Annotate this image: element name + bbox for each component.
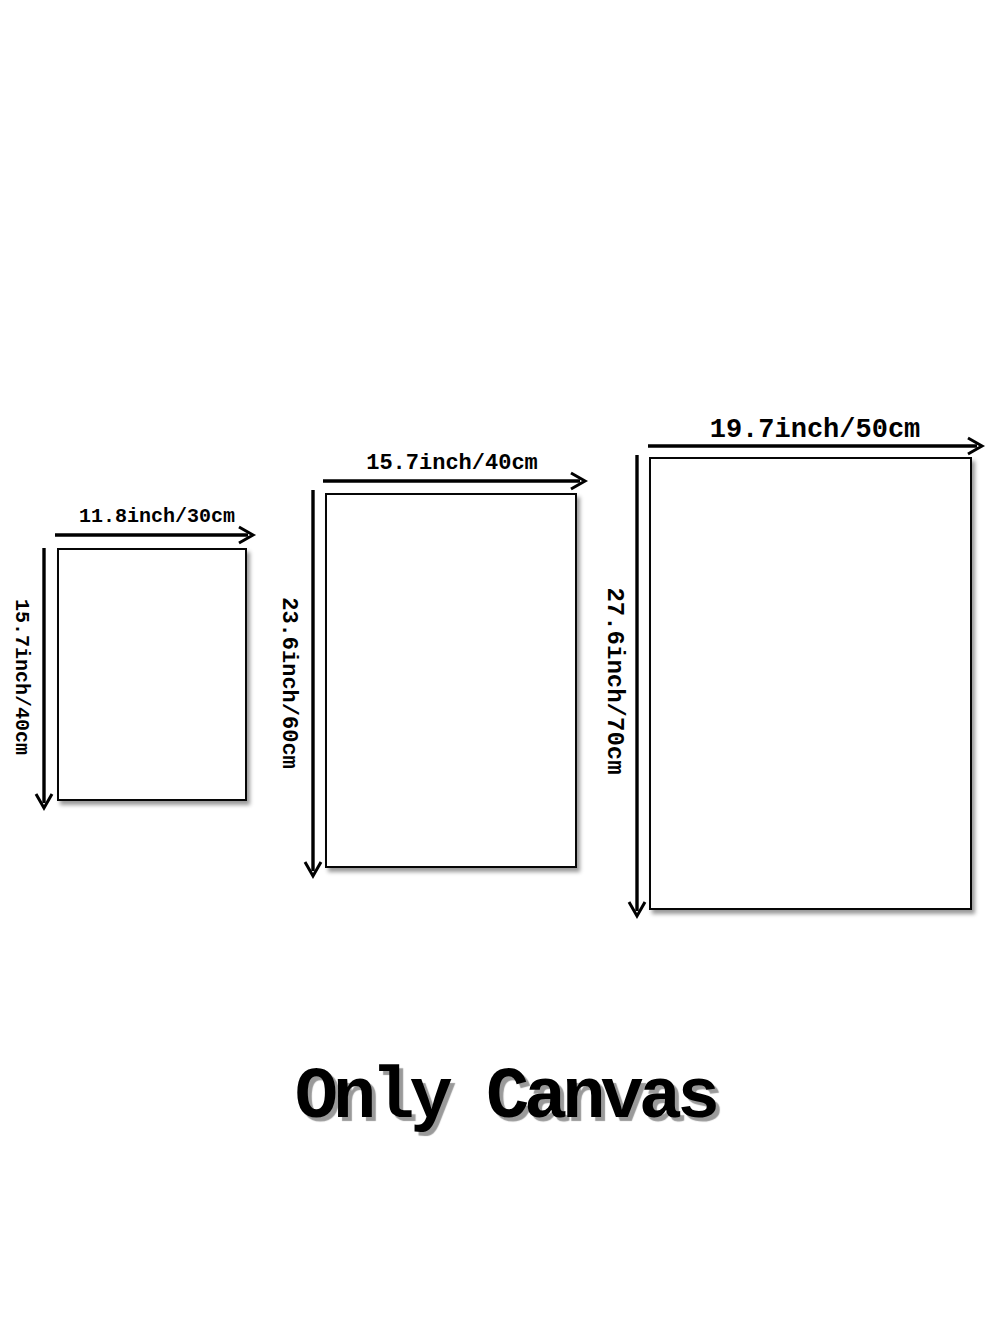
- canvas-rect-medium: [325, 493, 577, 868]
- width-arrow-small: [55, 527, 253, 543]
- canvas-rect-large: [649, 457, 972, 910]
- width-label-small: 11.8inch/30cm: [79, 507, 235, 527]
- height-arrow-large: [629, 455, 645, 916]
- height-label-large: 27.6inch/70cm: [602, 587, 626, 774]
- height-arrow-small: [36, 548, 52, 808]
- width-label-medium: 15.7inch/40cm: [366, 453, 538, 475]
- height-label-small: 15.7inch/40cm: [11, 599, 31, 755]
- canvas-size-chart: 11.8inch/30cm 15.7inch/40cm 15.7inch/40c…: [0, 0, 1000, 1333]
- width-label-large: 19.7inch/50cm: [710, 417, 921, 444]
- height-label-medium: 23.6inch/60cm: [277, 597, 299, 769]
- height-arrow-medium: [305, 490, 321, 876]
- caption: Only Canvas: [295, 1062, 715, 1134]
- canvas-rect-small: [57, 548, 247, 801]
